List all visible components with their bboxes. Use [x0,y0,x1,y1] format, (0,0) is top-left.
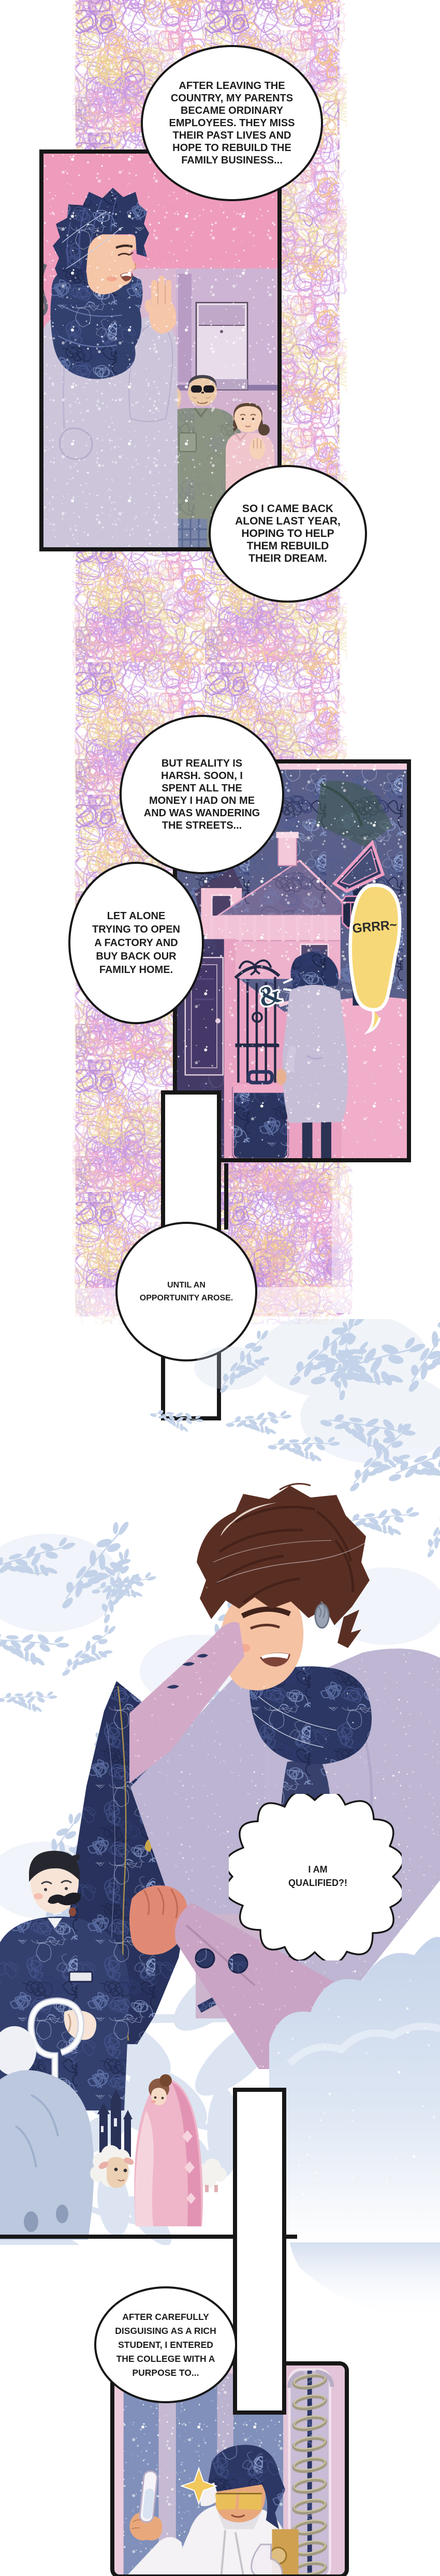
svg-text:QUALIFIED?!: QUALIFIED?! [288,1878,347,1888]
svg-text:I AM: I AM [308,1864,327,1875]
